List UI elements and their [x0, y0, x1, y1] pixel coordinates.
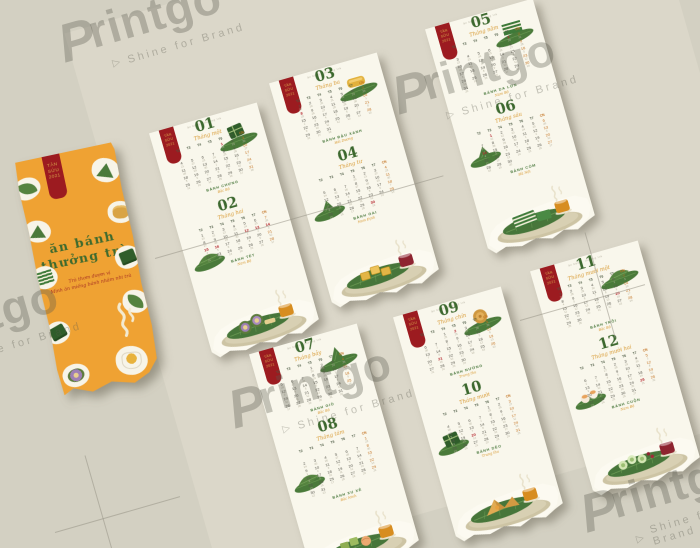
day-cell: 3125 — [512, 427, 525, 437]
leaf-cake-icon — [17, 179, 38, 198]
lunar-day: 17 — [318, 134, 322, 137]
mockup-stage: TÂN SỬU 2021 ăn bánh thưởng trà Trà thơm… — [0, 0, 700, 548]
lunar-day: 16 — [340, 213, 344, 216]
day-cell — [388, 193, 401, 203]
lunar-day: 12 — [218, 256, 222, 259]
cover-ribbon: TÂN SỬU 2021 — [42, 153, 69, 200]
lunar-day: 21 — [431, 371, 435, 374]
lunar-day: 17 — [271, 241, 275, 244]
lunar-day: 16 — [307, 137, 311, 140]
lunar-day: 18 — [488, 170, 492, 173]
lunar-day: 14 — [239, 250, 243, 253]
loaf-cake-icon — [112, 205, 129, 219]
lunar-day: 18 — [298, 405, 302, 408]
banh-chung-icon — [48, 323, 68, 342]
day-cell — [524, 67, 537, 77]
lunar-day: 22 — [486, 441, 490, 444]
lunar-day: 23 — [452, 365, 456, 368]
leaf-cone-icon — [96, 162, 115, 178]
day-cell — [489, 348, 502, 358]
lunar-day: 24 — [463, 362, 467, 365]
lunar-day: 23 — [591, 404, 595, 407]
lunar-day: 16 — [261, 244, 265, 247]
lunar-day: 20 — [509, 164, 513, 167]
lunar-day: 13 — [198, 184, 202, 187]
lunar-day: 22 — [442, 368, 446, 371]
day-cell — [546, 146, 559, 156]
lunar-day: 19 — [454, 450, 458, 453]
lunar-day: 18 — [328, 131, 332, 134]
lunar-day: 18 — [250, 169, 254, 172]
lunar-day: 23 — [322, 492, 326, 495]
lunar-day: 16 — [229, 175, 233, 178]
food-sticker — [42, 317, 75, 349]
lunar-day: 25 — [568, 325, 572, 328]
lunar-day: 13 — [229, 253, 233, 256]
lunar-day: 17 — [240, 172, 244, 175]
lunar-day: 26 — [623, 395, 627, 398]
banh-tet-slice-icon — [66, 366, 86, 384]
lunar-day: 15 — [250, 247, 254, 250]
lunar-day: 27 — [633, 392, 637, 395]
lunar-day: 20 — [319, 399, 323, 402]
lunar-day: 23 — [496, 438, 500, 441]
lunar-day: 17 — [351, 210, 355, 213]
lunar-day: 20 — [464, 447, 468, 450]
lunar-day: 14 — [208, 181, 212, 184]
day-cell — [626, 302, 639, 312]
lunar-day: 20 — [465, 90, 469, 93]
lunar-day: 12 — [187, 187, 191, 190]
food-sticker — [90, 157, 120, 184]
food-sticker — [13, 173, 44, 205]
lunar-day: 19 — [498, 167, 502, 170]
layer-cake-icon — [36, 269, 55, 286]
day-cell — [365, 114, 378, 124]
crop-mark-line — [55, 496, 180, 533]
tea-cup-icon — [121, 351, 142, 370]
lunar-day: 25 — [612, 398, 616, 401]
play-icon: ▷ — [635, 532, 648, 546]
food-sticker — [114, 344, 149, 376]
ribbon-year-label: 2021 — [48, 172, 61, 180]
banh-chung-icon — [118, 248, 137, 266]
leaf-cone-icon — [30, 225, 47, 238]
lunar-day: 26 — [579, 322, 583, 325]
lunar-day: 22 — [340, 393, 344, 396]
day-cell: 3118 — [245, 164, 258, 174]
lunar-day: 11 — [208, 259, 212, 262]
day-cell — [370, 471, 383, 481]
lunar-day: 19 — [372, 204, 376, 207]
lunar-day: 22 — [312, 495, 316, 498]
crop-mark-line — [85, 455, 118, 548]
lunar-day: 24 — [507, 435, 511, 438]
lunar-day: 21 — [329, 396, 333, 399]
lunar-day: 18 — [362, 207, 366, 210]
day-cell — [649, 381, 662, 391]
bottom-scene-illustration — [443, 462, 566, 546]
lunar-day: 25 — [517, 432, 521, 435]
lunar-day: 19 — [308, 402, 312, 405]
lunar-day: 15 — [330, 216, 334, 219]
lunar-day: 15 — [219, 178, 223, 181]
day-cell — [345, 385, 358, 395]
lunar-day: 17 — [287, 408, 291, 411]
food-sticker — [25, 220, 52, 243]
lunar-day: 24 — [601, 401, 605, 404]
day-cell: 2817 — [266, 236, 279, 246]
bottom-scene-illustration — [580, 416, 700, 500]
food-sticker — [60, 360, 93, 391]
brand-tagline: Shine for Brand — [648, 495, 700, 547]
lunar-day: 21 — [475, 444, 479, 447]
